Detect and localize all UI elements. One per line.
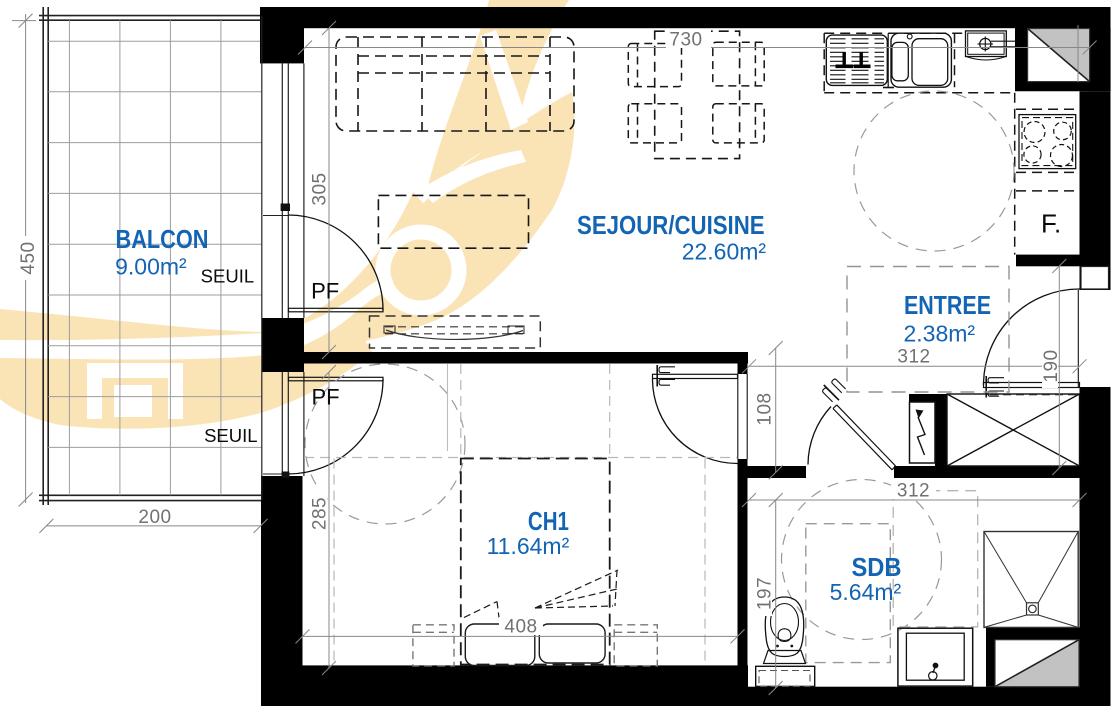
svg-text:200: 200	[138, 507, 171, 528]
svg-text:SEUIL: SEUIL	[201, 266, 254, 287]
svg-text:285: 285	[310, 497, 331, 530]
svg-text:F.: F.	[1041, 209, 1061, 239]
svg-text:BALCON: BALCON	[116, 224, 209, 254]
svg-text:11.64m²: 11.64m²	[487, 533, 570, 559]
svg-text:2.38m²: 2.38m²	[904, 321, 976, 347]
svg-text:312: 312	[897, 347, 930, 368]
svg-text:PF: PF	[311, 279, 339, 304]
svg-text:197: 197	[755, 577, 776, 610]
svg-text:22.60m²: 22.60m²	[682, 239, 767, 265]
svg-text:450: 450	[18, 241, 39, 274]
svg-text:305: 305	[310, 172, 331, 205]
svg-text:312: 312	[897, 481, 930, 502]
svg-text:SDB: SDB	[852, 552, 902, 582]
svg-text:408: 408	[504, 617, 537, 638]
svg-text:190: 190	[1041, 349, 1062, 382]
svg-text:108: 108	[755, 392, 776, 425]
svg-text:9.00m²: 9.00m²	[115, 254, 187, 280]
svg-text:SEJOUR/CUISINE: SEJOUR/CUISINE	[577, 210, 765, 240]
svg-text:5.64m²: 5.64m²	[830, 579, 902, 605]
svg-text:730: 730	[669, 30, 702, 51]
svg-text:PF: PF	[311, 385, 339, 410]
svg-text:CH1: CH1	[528, 506, 569, 536]
svg-text:ENTREE: ENTREE	[904, 290, 991, 320]
svg-text:SEUIL: SEUIL	[204, 425, 257, 446]
